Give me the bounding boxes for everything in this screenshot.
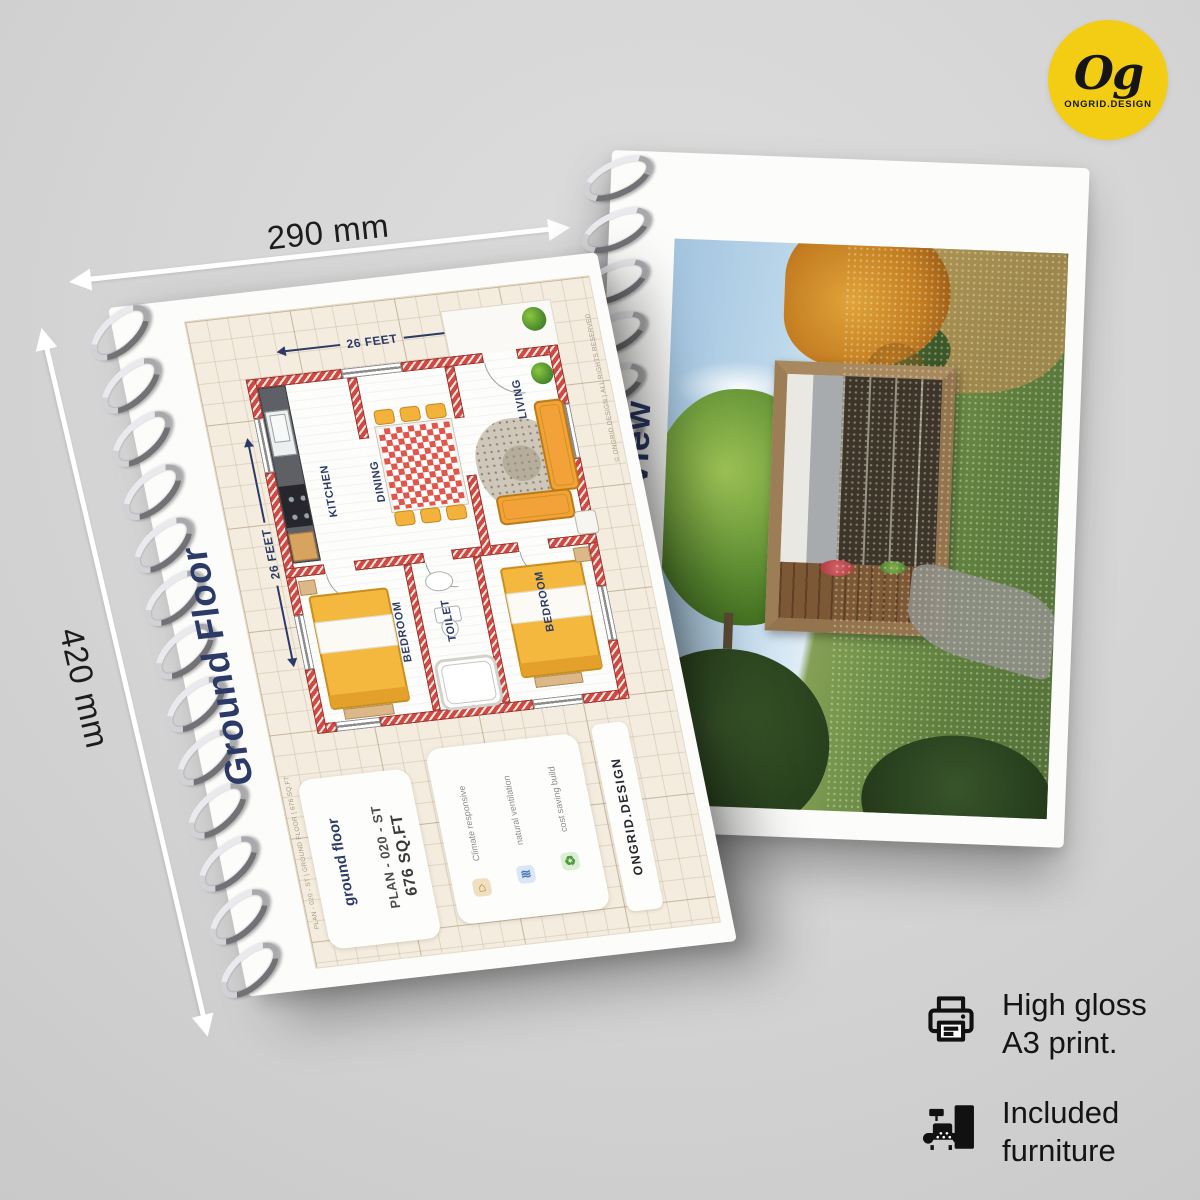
climate-icon: ⌂ [471,878,492,898]
dining-chair [399,405,422,422]
brand-strip-label: ONGRID.DESIGN [608,757,646,876]
feature-label: natural ventilation [501,775,525,846]
feature-label: cost saving build [546,766,569,833]
dining-chair [425,403,448,420]
side-table [573,509,600,535]
spiral-ring [577,146,659,211]
brand-logo: Og ONGRID.DESIGN [1048,20,1168,140]
plan-name: ground floor [324,817,359,907]
eco-build-icon: ♻ [560,851,581,871]
callout-text: Included furniture [1002,1094,1119,1170]
callout-print: High gloss A3 print. [922,986,1147,1062]
callout-text: High gloss A3 print. [1002,986,1147,1062]
render-photo [653,238,1068,819]
logo-subtext: ONGRID.DESIGN [1064,99,1151,110]
ventilation-icon: ≋ [515,864,536,884]
floor-plan: KITCHEN DINING LIVING BEDROOM TOILET BED… [246,344,630,734]
dining-chair [445,504,468,521]
features-card: ⌂ Climate responsive ≋ natural ventilati… [425,733,612,925]
dim-top-label: 26 FEET [345,332,398,352]
right-spiral-binding [612,150,1090,168]
nightstand [573,546,592,563]
callout-line: High gloss [1002,986,1147,1024]
callout-line: Included [1002,1094,1119,1132]
dining-chair [373,408,396,425]
dim-arrowhead [287,658,299,668]
logo-wordmark: Og [1074,51,1142,95]
dim-line [284,344,340,352]
feature-label: Climate responsive [456,785,481,861]
callout-furniture: Included furniture [922,1094,1119,1170]
tree-trunk [723,613,733,649]
furniture-icon [922,1098,980,1156]
dining-chair [393,510,416,527]
callout-line: A3 print. [1002,1024,1147,1062]
callout-line: furniture [1002,1132,1119,1170]
nightstand [298,579,318,596]
height-dimension-label: 420 mm [52,624,117,752]
dim-arrowhead [276,346,287,357]
grass-texture [825,245,1069,819]
bathtub [433,653,505,711]
dining-chair [419,507,442,524]
stage: 290 mm 420 mm 3D View [0,0,1200,1200]
bed-sheet [314,613,398,654]
kitchen-fridge [288,531,318,561]
printer-icon [922,990,980,1048]
dim-arrowhead [242,438,254,448]
